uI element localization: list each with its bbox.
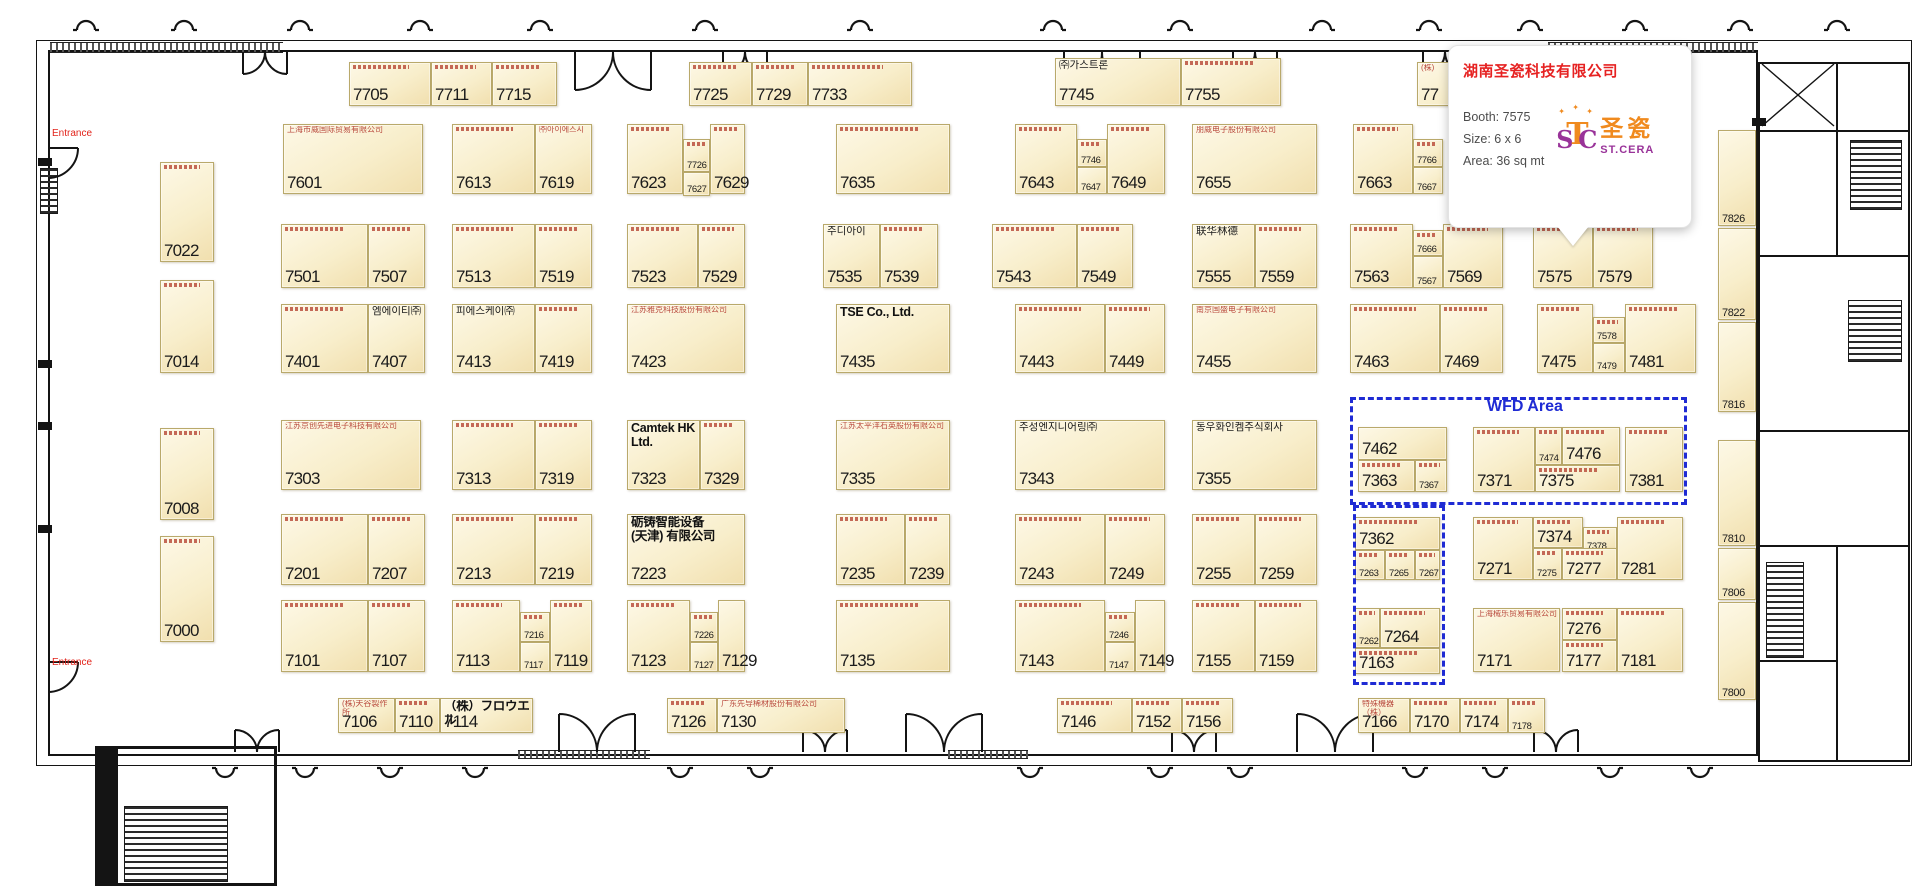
booth-number: 7255 xyxy=(1196,564,1231,584)
door-icon xyxy=(1687,768,1713,777)
booth-number: 7226 xyxy=(694,630,714,641)
booth-7559[interactable]: 7559 xyxy=(1255,224,1317,288)
booth-company-name: 广东先导稀材股份有限公司 xyxy=(721,700,842,709)
booth-7578[interactable]: 7578 xyxy=(1593,317,1625,343)
booth-number: 7435 xyxy=(840,352,875,372)
sparkle-icon: ✦ xyxy=(1572,103,1579,112)
booth-number: 7123 xyxy=(631,651,666,671)
booth-number: 7201 xyxy=(285,564,320,584)
booth-header-illegible xyxy=(1597,320,1618,324)
booth-number: 7623 xyxy=(631,173,666,193)
booth-7170[interactable]: 7170 xyxy=(1410,698,1460,733)
booth-number: 7649 xyxy=(1111,173,1146,193)
booth-7113[interactable]: 7113 xyxy=(452,600,520,672)
booth-7335[interactable]: 江苏太平洋石英股份有限公司7335 xyxy=(836,420,950,490)
booth-number: 7343 xyxy=(1019,469,1054,489)
tooltip-booth-size: Size: 6 x 6 xyxy=(1463,129,1544,151)
booth-7207[interactable]: 7207 xyxy=(368,514,425,585)
booth-7106[interactable]: (株)天谷製作所7106 xyxy=(338,698,395,733)
booth-7623[interactable]: 7623 xyxy=(627,124,683,194)
booth-header-illegible xyxy=(372,227,411,231)
booth-7479[interactable]: 7479 xyxy=(1593,343,1625,373)
booth-number: 7746 xyxy=(1081,155,1101,166)
booth-7149[interactable]: 7149 xyxy=(1135,600,1165,672)
door-icon xyxy=(747,768,773,777)
booth-7249[interactable]: 7249 xyxy=(1105,514,1165,585)
booth-number: 7635 xyxy=(840,173,875,193)
booth-7127[interactable]: 7127 xyxy=(690,642,718,672)
booth-7107[interactable]: 7107 xyxy=(368,600,425,672)
booth-number: 7178 xyxy=(1512,721,1532,732)
booth-7329[interactable]: 7329 xyxy=(700,420,745,490)
booth-header-illegible xyxy=(756,65,794,69)
booth-company-name: 上海市威国际贸易有限公司 xyxy=(287,126,420,135)
booth-company-name: 江苏京创先进电子科技有限公司 xyxy=(285,422,418,431)
booth-header-illegible xyxy=(693,65,736,69)
booth-7523[interactable]: 7523 xyxy=(627,224,698,288)
booth-7435[interactable]: TSE Co., Ltd.7435 xyxy=(836,304,950,373)
booth-number: 7207 xyxy=(372,564,407,584)
booth-number: 7613 xyxy=(456,173,491,193)
booth-number: 7276 xyxy=(1566,619,1601,639)
door-icon xyxy=(1402,768,1428,777)
wfd-area-outline-lower xyxy=(1353,505,1445,685)
booth-7374[interactable]: 7374 xyxy=(1533,517,1583,548)
booth-7022[interactable]: 7022 xyxy=(160,162,214,262)
booth-header-illegible xyxy=(1259,517,1301,521)
booth-header-illegible xyxy=(539,307,578,311)
booth-7806[interactable]: 7806 xyxy=(1718,548,1756,600)
booth-7567[interactable]: 7567 xyxy=(1413,256,1443,288)
booth-7303[interactable]: 江苏京创先进电子科技有限公司7303 xyxy=(281,420,421,490)
booth-header-illegible xyxy=(539,227,578,231)
booth-7123[interactable]: 7123 xyxy=(627,600,690,672)
booth-7166[interactable]: 特殊機器（株）7166 xyxy=(1358,698,1410,733)
booth-7155[interactable]: 7155 xyxy=(1192,600,1255,672)
booth-7629[interactable]: 7629 xyxy=(710,124,745,194)
booth-7463[interactable]: 7463 xyxy=(1350,304,1440,373)
booth-number: 7726 xyxy=(687,160,707,171)
booth-7181[interactable]: 7181 xyxy=(1617,608,1683,672)
door-icon xyxy=(407,21,433,30)
booth-number: 7223 xyxy=(631,564,666,584)
booth-7171[interactable]: 上海械乐贸易有限公司7171 xyxy=(1473,608,1560,672)
booth-number: 7800 xyxy=(1722,687,1745,699)
booth-7539[interactable]: 7539 xyxy=(880,224,938,288)
booth-number: 7578 xyxy=(1597,331,1617,342)
booth-7407[interactable]: 엠에이티㈜7407 xyxy=(368,304,425,373)
booth-number: 7543 xyxy=(996,267,1031,287)
booth-header-illegible xyxy=(456,517,513,521)
booth-7277[interactable]: 7277 xyxy=(1562,548,1617,580)
booth-7323[interactable]: Camtek HK Ltd.7323 xyxy=(627,420,700,490)
tooltip-pointer xyxy=(1557,226,1589,246)
booth-7419[interactable]: 7419 xyxy=(535,304,592,373)
booth-7130[interactable]: 广东先导稀材股份有限公司7130 xyxy=(717,698,845,733)
booth-company-name: 주디아이 xyxy=(827,226,877,238)
booth-header-illegible xyxy=(909,517,939,521)
booth-7000[interactable]: 7000 xyxy=(160,536,214,642)
booth-7519[interactable]: 7519 xyxy=(535,224,592,288)
st-cera-monogram-icon: ✦ ✦ ✦ S T C xyxy=(1556,109,1596,161)
booth-number: 7733 xyxy=(812,85,847,105)
booth-number: 7259 xyxy=(1259,564,1294,584)
booth-7219[interactable]: 7219 xyxy=(535,514,592,585)
door-icon xyxy=(1227,768,1253,777)
booth-number: 7549 xyxy=(1081,267,1116,287)
booth-7216[interactable]: 7216 xyxy=(520,612,550,642)
booth-7281[interactable]: 7281 xyxy=(1617,517,1683,580)
booth-7259[interactable]: 7259 xyxy=(1255,514,1317,585)
booth-7213[interactable]: 7213 xyxy=(452,514,535,585)
booth-7159[interactable]: 7159 xyxy=(1255,600,1317,672)
booth-number: 7174 xyxy=(1464,712,1499,732)
booth-7343[interactable]: 주성엔지니어링㈜7343 xyxy=(1015,420,1165,490)
booth-7810[interactable]: 7810 xyxy=(1718,440,1756,546)
booth-company-name: 江苏雅克科技股份有限公司 xyxy=(631,306,742,315)
booth-7449[interactable]: 7449 xyxy=(1105,304,1165,373)
booth-header-illegible xyxy=(1354,227,1397,231)
booth-number: 7627 xyxy=(687,184,707,195)
booth-7469[interactable]: 7469 xyxy=(1440,304,1503,373)
booth-7555[interactable]: 联华林德7555 xyxy=(1192,224,1255,288)
booth-7135[interactable]: 7135 xyxy=(836,600,950,672)
booth-company-name: TSE Co., Ltd. xyxy=(840,306,947,320)
booth-header-illegible xyxy=(372,517,411,521)
booth-header-illegible xyxy=(714,127,737,131)
booth-header-illegible xyxy=(1537,551,1556,555)
booth-7800[interactable]: 7800 xyxy=(1718,602,1756,700)
booth-7455[interactable]: 南京国盛电子有限公司7455 xyxy=(1192,304,1317,373)
booth-7667[interactable]: 7667 xyxy=(1413,167,1443,194)
booth-number: 7455 xyxy=(1196,352,1231,372)
door-icon xyxy=(847,21,873,30)
booth-7643[interactable]: 7643 xyxy=(1015,124,1077,194)
tooltip-booth-area: Area: 36 sq mt xyxy=(1463,151,1544,173)
booth-7126[interactable]: 7126 xyxy=(667,698,717,733)
booth-7246[interactable]: 7246 xyxy=(1105,612,1135,642)
booth-number: 7449 xyxy=(1109,352,1144,372)
booth-7627[interactable]: 7627 xyxy=(683,172,710,196)
tooltip-booth-number: Booth: 7575 xyxy=(1463,107,1544,129)
booth-number: 7539 xyxy=(884,267,919,287)
booth-7271[interactable]: 7271 xyxy=(1473,517,1533,580)
booth-company-name: 江苏太平洋石英股份有限公司 xyxy=(840,422,947,431)
booth-number: 7569 xyxy=(1447,267,1482,287)
booth-company-name: 联华林德 xyxy=(1196,226,1252,238)
booth-company-name: 피에스케이㈜ xyxy=(456,306,532,318)
booth-header-illegible xyxy=(353,65,409,69)
booth-header-illegible xyxy=(1259,603,1301,607)
booth-number: 7419 xyxy=(539,352,574,372)
booth-number: 7249 xyxy=(1109,564,1144,584)
booth-7529[interactable]: 7529 xyxy=(698,224,745,288)
booth-header-illegible xyxy=(1629,307,1677,311)
booth-7014[interactable]: 7014 xyxy=(160,280,214,373)
booth-7601[interactable]: 上海市威国际贸易有限公司7601 xyxy=(283,124,423,194)
booth-7413[interactable]: 피에스케이㈜7413 xyxy=(452,304,535,373)
booth-7501[interactable]: 7501 xyxy=(281,224,368,288)
door-icon xyxy=(1534,730,1578,752)
booth-7243[interactable]: 7243 xyxy=(1015,514,1105,585)
booth-7156[interactable]: 7156 xyxy=(1182,698,1233,733)
booth-number: 7629 xyxy=(714,173,749,193)
booth-number: 7519 xyxy=(539,267,574,287)
booth-number: 7014 xyxy=(164,352,199,372)
booth-7745[interactable]: ㈜가스트론7745 xyxy=(1055,58,1181,106)
booth-7635[interactable]: 7635 xyxy=(836,124,950,194)
booth-7146[interactable]: 7146 xyxy=(1057,698,1132,733)
booth-header-illegible xyxy=(1541,307,1579,311)
booth-7563[interactable]: 7563 xyxy=(1350,224,1413,288)
booth-7114[interactable]: （株）フロウエル7114 xyxy=(440,698,533,733)
booth-7239[interactable]: 7239 xyxy=(905,514,950,585)
booth-7201[interactable]: 7201 xyxy=(281,514,368,585)
booth-7725[interactable]: 7725 xyxy=(689,62,752,106)
booth-number: 7113 xyxy=(456,651,489,671)
booth-number: 7275 xyxy=(1537,568,1557,579)
st-cera-logo: ✦ ✦ ✦ S T C 圣瓷 ST.CERA xyxy=(1556,107,1654,173)
booth-number: 7114 xyxy=(444,712,477,732)
booth-7276[interactable]: 7276 xyxy=(1562,608,1617,640)
booth-header-illegible xyxy=(694,615,712,619)
sparkle-icon: ✦ xyxy=(1558,107,1565,116)
booth-number: 7555 xyxy=(1196,267,1231,287)
door-icon xyxy=(1309,21,1335,30)
booth-7129[interactable]: 7129 xyxy=(718,600,745,672)
booth-number: 7149 xyxy=(1139,651,1174,671)
booth-number: 7374 xyxy=(1537,527,1572,547)
booth-header-illegible xyxy=(285,517,345,521)
booth-7101[interactable]: 7101 xyxy=(281,600,368,672)
booth-number: 7107 xyxy=(372,651,407,671)
booth-number: 7170 xyxy=(1414,712,1449,732)
booth-7655[interactable]: 朋威电子股份有限公司7655 xyxy=(1192,124,1317,194)
door-icon xyxy=(1727,21,1753,30)
booth-header-illegible xyxy=(840,517,887,521)
booth-header-illegible xyxy=(1464,701,1496,705)
booth-7715[interactable]: 7715 xyxy=(492,62,557,106)
booth-header-illegible xyxy=(631,227,679,231)
booth-number: 7166 xyxy=(1362,712,1397,732)
booth-number: 7643 xyxy=(1019,173,1054,193)
booth-7178[interactable]: 7178 xyxy=(1508,698,1545,733)
booth-header-illegible xyxy=(554,603,582,607)
door-icon xyxy=(1147,768,1173,777)
booth-7275[interactable]: 7275 xyxy=(1533,548,1562,580)
booth-header-illegible xyxy=(1196,603,1239,607)
booth-number: 7177 xyxy=(1566,651,1601,671)
door-icon xyxy=(1017,768,1043,777)
booth-number: 7715 xyxy=(496,85,531,105)
booth-number: 77 xyxy=(1421,85,1438,105)
booth-7666[interactable]: 7666 xyxy=(1413,230,1443,256)
booth-7507[interactable]: 7507 xyxy=(368,224,425,288)
door-icon xyxy=(48,148,78,178)
booth-7647[interactable]: 7647 xyxy=(1077,167,1107,194)
booth-7313[interactable]: 7313 xyxy=(452,420,535,490)
door-icon xyxy=(559,714,635,752)
entrance-label-top: Entrance xyxy=(52,128,92,139)
booth-7355[interactable]: 동우화인켐주식회사7355 xyxy=(1192,420,1317,490)
door-icon xyxy=(1040,21,1066,30)
booth-number: 7243 xyxy=(1019,564,1054,584)
booth-header-illegible xyxy=(496,65,540,69)
booth-7579[interactable]: 7579 xyxy=(1593,224,1653,288)
booth-7726[interactable]: 7726 xyxy=(683,139,710,172)
booth-number: 7513 xyxy=(456,267,491,287)
booth-7513[interactable]: 7513 xyxy=(452,224,535,288)
booth-7549[interactable]: 7549 xyxy=(1077,224,1133,288)
booth-company-name: 南京国盛电子有限公司 xyxy=(1196,306,1314,315)
booth-7826[interactable]: 7826 xyxy=(1718,130,1756,226)
booth-7766[interactable]: 7766 xyxy=(1413,139,1443,167)
booth-7746[interactable]: 7746 xyxy=(1077,139,1107,167)
booth-number: 7766 xyxy=(1417,155,1437,166)
booth-header-illegible xyxy=(1357,127,1398,131)
door-icon xyxy=(1482,768,1508,777)
booth-number: 7463 xyxy=(1354,352,1389,372)
booth-info-tooltip[interactable]: 湖南圣瓷科技有限公司 Booth: 7575 Size: 6 x 6 Area:… xyxy=(1448,45,1692,228)
booth-7711[interactable]: 7711 xyxy=(431,62,492,106)
booth-7008[interactable]: 7008 xyxy=(160,428,214,520)
booth-7423[interactable]: 江苏雅克科技股份有限公司7423 xyxy=(627,304,745,373)
booth-number: 7135 xyxy=(840,651,875,671)
door-icon xyxy=(527,21,553,30)
booth-number: 7143 xyxy=(1019,651,1054,671)
booth-7110[interactable]: 7110 xyxy=(395,698,440,733)
booth-header-illegible xyxy=(1566,643,1603,647)
booth-header-illegible xyxy=(1061,701,1112,705)
booth-number: 7822 xyxy=(1722,307,1745,319)
booth-header-illegible xyxy=(285,227,345,231)
tooltip-company-name: 湖南圣瓷科技有限公司 xyxy=(1463,60,1677,81)
booth-7174[interactable]: 7174 xyxy=(1460,698,1508,733)
booth-number: 7826 xyxy=(1722,213,1745,225)
booth-number: 7313 xyxy=(456,469,491,489)
booth-header-illegible xyxy=(840,603,918,607)
booth-number: 7535 xyxy=(827,267,862,287)
entrance-label-bottom: Entrance xyxy=(52,657,92,668)
booth-number: 7666 xyxy=(1417,244,1437,255)
booth-7443[interactable]: 7443 xyxy=(1015,304,1105,373)
booth-7613[interactable]: 7613 xyxy=(452,124,535,194)
logo-english-name: ST.CERA xyxy=(1600,144,1654,156)
booth-number: 7579 xyxy=(1597,267,1632,287)
booth-7705[interactable]: 7705 xyxy=(349,62,431,106)
door-icon xyxy=(1824,21,1850,30)
booth-7729[interactable]: 7729 xyxy=(752,62,808,106)
booth-number: 7667 xyxy=(1417,182,1437,193)
booth-7226[interactable]: 7226 xyxy=(690,612,718,642)
booth-header-illegible xyxy=(1019,517,1081,521)
booth-number: 7705 xyxy=(353,85,388,105)
booth-number: 7171 xyxy=(1477,651,1512,671)
booth-header-illegible xyxy=(1566,551,1603,555)
booth-7543[interactable]: 7543 xyxy=(992,224,1077,288)
booth-header-illegible xyxy=(1109,517,1150,521)
booth-header-illegible xyxy=(1196,517,1239,521)
booth-number: 7413 xyxy=(456,352,491,372)
booth-7119[interactable]: 7119 xyxy=(550,600,592,672)
booth-header-illegible xyxy=(456,603,502,607)
booth-7755[interactable]: 7755 xyxy=(1181,58,1281,106)
booth-header-illegible xyxy=(1621,611,1666,615)
booth-company-name: 上海械乐贸易有限公司 xyxy=(1477,610,1557,619)
booth-7255[interactable]: 7255 xyxy=(1192,514,1255,585)
booth-header-illegible xyxy=(285,307,345,311)
booth-number: 7475 xyxy=(1541,352,1576,372)
booth-header-illegible xyxy=(1186,701,1220,705)
booth-number: 7619 xyxy=(539,173,574,193)
booth-number: 7126 xyxy=(671,712,706,732)
booth-header-illegible xyxy=(840,127,918,131)
booth-header-illegible xyxy=(1417,233,1437,237)
booth-7535[interactable]: 주디아이7535 xyxy=(823,224,880,288)
booth-header-illegible xyxy=(372,603,411,607)
booth-7663[interactable]: 7663 xyxy=(1353,124,1413,194)
booth-number: 7117 xyxy=(524,660,543,671)
booth-7733[interactable]: 7733 xyxy=(808,62,912,106)
booth-number: 7816 xyxy=(1722,399,1745,411)
booth-7235[interactable]: 7235 xyxy=(836,514,905,585)
booth-number: 7601 xyxy=(287,173,322,193)
booth-number: 7147 xyxy=(1109,660,1129,671)
booth-number: 7000 xyxy=(164,621,199,641)
booth-header-illegible xyxy=(539,517,578,521)
booth-7117[interactable]: 7117 xyxy=(520,642,550,672)
booth-number: 7745 xyxy=(1059,85,1094,105)
booth-company-name: Camtek HK Ltd. xyxy=(631,422,697,450)
booth-7649[interactable]: 7649 xyxy=(1107,124,1165,194)
booth-7152[interactable]: 7152 xyxy=(1132,698,1182,733)
booth-7143[interactable]: 7143 xyxy=(1015,600,1105,672)
door-icon xyxy=(212,768,238,777)
booth-header-illegible xyxy=(524,615,544,619)
booth-number: 7501 xyxy=(285,267,320,287)
exhibition-floor-plan: 770577117715772577297733㈜가스트론77457755(株)… xyxy=(0,0,1920,892)
booth-7319[interactable]: 7319 xyxy=(535,420,592,490)
booth-7822[interactable]: 7822 xyxy=(1718,228,1756,320)
booth-7223[interactable]: 砺铸智能设备 (天津) 有限公司7223 xyxy=(627,514,745,585)
booth-7147[interactable]: 7147 xyxy=(1105,642,1135,672)
booth-header-illegible xyxy=(1354,307,1416,311)
booth-header-illegible xyxy=(456,127,513,131)
booth-header-illegible xyxy=(1109,615,1129,619)
logo-chinese-name: 圣瓷 xyxy=(1600,109,1654,143)
booth-7475[interactable]: 7475 xyxy=(1537,304,1593,373)
booth-7619[interactable]: ㈜아이에스시7619 xyxy=(535,124,592,194)
booth-number: 7008 xyxy=(164,499,199,519)
booth-7816[interactable]: 7816 xyxy=(1718,322,1756,412)
booth-number: 7663 xyxy=(1357,173,1392,193)
door-icon xyxy=(1416,21,1442,30)
booth-7569[interactable]: 7569 xyxy=(1443,224,1503,288)
booth-header-illegible xyxy=(996,227,1054,231)
door-icon xyxy=(73,21,99,30)
booth-number: 7729 xyxy=(756,85,791,105)
booth-7481[interactable]: 7481 xyxy=(1625,304,1696,373)
booth-header-illegible xyxy=(1019,307,1081,311)
booth-7401[interactable]: 7401 xyxy=(281,304,368,373)
booth-header-illegible xyxy=(285,603,345,607)
booth-header-illegible xyxy=(1136,701,1170,705)
booth-7177[interactable]: 7177 xyxy=(1562,640,1617,672)
booth-number: 7152 xyxy=(1136,712,1171,732)
booth-number: 7523 xyxy=(631,267,666,287)
booth-header-illegible xyxy=(456,227,513,231)
door-icon xyxy=(292,768,318,777)
